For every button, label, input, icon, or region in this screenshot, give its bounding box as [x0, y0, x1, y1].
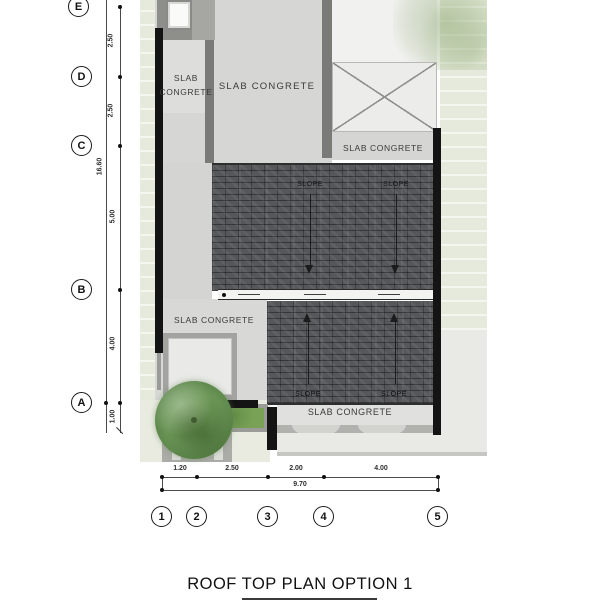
dim-label-overall: 16.60 [97, 152, 104, 182]
gutter-mark [304, 294, 326, 295]
dim-label: 2.50 [217, 465, 247, 472]
gutter-mark [378, 294, 400, 295]
lower-terrace-edge [277, 452, 487, 456]
grid-bubble-col: 5 [427, 506, 448, 527]
grid-bubble-row: D [71, 66, 92, 87]
landscape-strip-left [140, 0, 155, 460]
gutter-mark [238, 294, 260, 295]
grid-bubble-col: 4 [313, 506, 334, 527]
skylight-hatch [166, 0, 192, 30]
dim-label: 1.20 [165, 465, 195, 472]
dim-dot [118, 5, 122, 9]
grid-bubble-col: 2 [186, 506, 207, 527]
grid-row-label: A [78, 397, 86, 409]
grid-bubble-col: 3 [257, 506, 278, 527]
grid-row-label: C [78, 140, 86, 152]
slope-arrow-down [396, 194, 397, 266]
dim-line-vertical-overall [106, 0, 107, 433]
slab-label-mid-left: SLAB CONGRETE [164, 315, 264, 325]
tree-trunk [191, 417, 197, 423]
dim-dot [104, 401, 108, 405]
slope-arrowhead-up [303, 313, 311, 322]
grid-row-label: E [75, 1, 82, 13]
wall-gray-left [205, 40, 214, 163]
skylight-x-area [332, 62, 437, 132]
dim-label: 4.00 [366, 465, 396, 472]
slab-left-column [155, 163, 212, 302]
dim-line-horizontal-overall [162, 490, 438, 491]
slab-label-line: SLAB [158, 71, 214, 85]
wall-left-stub [157, 353, 161, 390]
slab-label-upper-right: SLAB CONGRETE [333, 143, 433, 153]
dim-dot [160, 488, 164, 492]
dim-label: 1.00 [110, 402, 117, 432]
slope-label: SLOPE [290, 181, 330, 188]
dim-line-vertical-segments [120, 5, 121, 433]
dim-label: 2.50 [108, 26, 115, 56]
slab-label-bottom: SLAB CONGRETE [290, 407, 410, 417]
dim-dot [266, 475, 270, 479]
dim-dot [118, 75, 122, 79]
drawing-title: ROOF TOP PLAN OPTION 1 [150, 575, 450, 594]
grid-row-label: B [78, 284, 86, 296]
dim-dot [195, 475, 199, 479]
dim-line-horizontal-segments [162, 477, 438, 478]
dim-dot [436, 475, 440, 479]
grid-col-label: 1 [158, 511, 164, 523]
dim-dot [436, 488, 440, 492]
tree-canopy-faint [393, 0, 487, 70]
slab-label-top-center: SLAB CONGRETE [207, 81, 327, 92]
gutter-drain-dot [222, 293, 226, 297]
stair-block-panel [192, 0, 215, 40]
grid-row-label: D [78, 71, 86, 83]
grid-bubble-row: C [71, 135, 92, 156]
slope-arrowhead-down [305, 265, 313, 274]
wall-gray-center [322, 0, 332, 158]
grid-bubble-row: E [68, 0, 89, 17]
slope-arrow-up [308, 322, 309, 384]
dim-dot [118, 401, 122, 405]
grid-bubble-row: B [71, 279, 92, 300]
dim-dot [118, 288, 122, 292]
dim-dot [118, 144, 122, 148]
slab-label-line: CONGRETE [158, 85, 214, 99]
slope-label: SLOPE [288, 391, 328, 398]
grid-bubble-col: 1 [151, 506, 172, 527]
slope-arrow-up [395, 322, 396, 384]
grid-col-label: 5 [434, 511, 440, 523]
rooftop-plan-drawing: SLOPE SLOPE SLOPE SLOPE 2.50 2.5 [0, 0, 600, 600]
title-underline [242, 598, 377, 600]
wall-black-vertical [267, 407, 277, 450]
slope-label: SLOPE [376, 181, 416, 188]
dim-dot [160, 475, 164, 479]
dim-dot [322, 475, 326, 479]
wall-black-right [433, 128, 441, 435]
dim-label: 2.50 [108, 96, 115, 126]
dim-label-overall: 9.70 [285, 481, 315, 488]
slope-label: SLOPE [374, 391, 414, 398]
slope-arrow-down [310, 194, 311, 266]
grid-col-label: 4 [320, 511, 326, 523]
slab-label-top-left: SLAB CONGRETE [158, 71, 214, 99]
roof-tile-lower [267, 301, 437, 405]
dim-label: 4.00 [110, 329, 117, 359]
dim-label: 2.00 [281, 465, 311, 472]
grid-bubble-row: A [71, 392, 92, 413]
grid-col-label: 2 [193, 511, 199, 523]
slope-arrowhead-up [390, 313, 398, 322]
grid-col-label: 3 [264, 511, 270, 523]
dim-label: 5.00 [110, 202, 117, 232]
slope-arrowhead-down [391, 265, 399, 274]
